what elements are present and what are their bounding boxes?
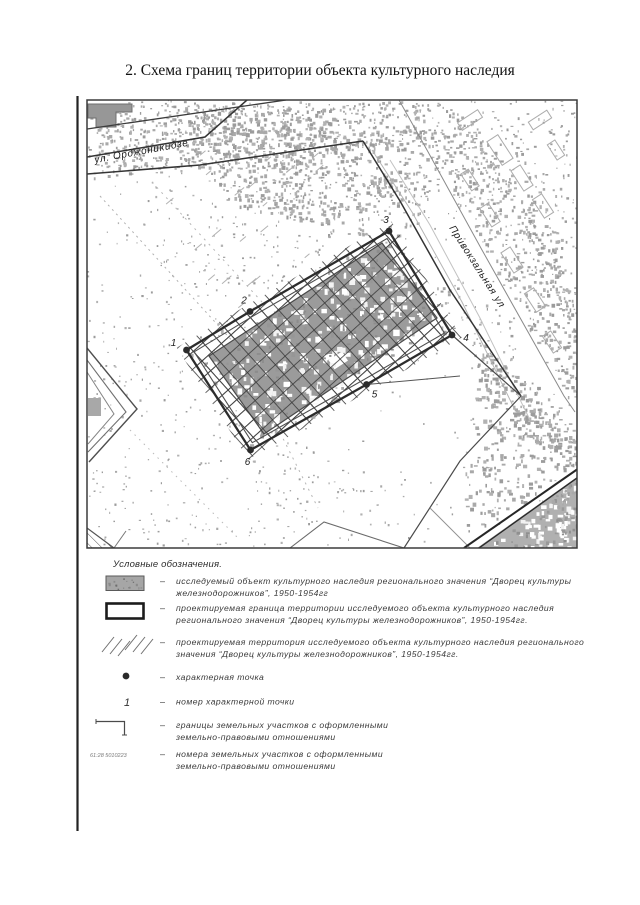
svg-text:6: 6 [245,457,251,468]
svg-text:железнодорожников”, 1950-1954г: железнодорожников”, 1950-1954гг [175,588,329,598]
svg-text:2. Схема границ территории объ: 2. Схема границ территории объекта культ… [125,62,515,79]
svg-text:Условные обозначения.: Условные обозначения. [112,559,222,570]
svg-text:номер характерной точки: номер характерной точки [176,697,295,707]
svg-text:5: 5 [372,390,378,401]
svg-text:исследуемый объект культурного: исследуемый объект культурного наследия … [176,576,572,586]
svg-text:61:28 5010223: 61:28 5010223 [90,753,128,759]
svg-text:номера земельных участков с оф: номера земельных участков с оформленными [176,749,383,759]
svg-text:–: – [160,720,165,730]
svg-text:–: – [160,749,165,759]
svg-text:4: 4 [463,333,469,344]
svg-text:–: – [160,603,165,613]
svg-text:проектируемая территория иссле: проектируемая территория исследуемого об… [176,637,584,647]
svg-text:–: – [160,576,165,586]
svg-text:характерная точка: характерная точка [175,672,264,682]
svg-text:земельно-правовыми отношениями: земельно-правовыми отношениями [175,732,336,742]
svg-text:1: 1 [124,697,130,709]
svg-text:регионального значения “Дворец: регионального значения “Дворец культуры … [175,615,528,625]
svg-text:–: – [160,672,165,682]
svg-text:значения “Дворец культуры желе: значения “Дворец культуры железнодорожни… [175,649,459,659]
svg-text:2: 2 [240,296,247,307]
svg-text:земельно-правовыми отношениями: земельно-правовыми отношениями [175,761,336,771]
svg-text:1: 1 [171,338,177,349]
svg-text:проектируемая граница территор: проектируемая граница территории исследу… [176,603,554,613]
svg-text:3: 3 [383,215,389,226]
svg-text:границы земельных участков с о: границы земельных участков с оформленным… [176,720,388,730]
svg-text:–: – [160,637,165,647]
svg-text:–: – [160,697,165,707]
